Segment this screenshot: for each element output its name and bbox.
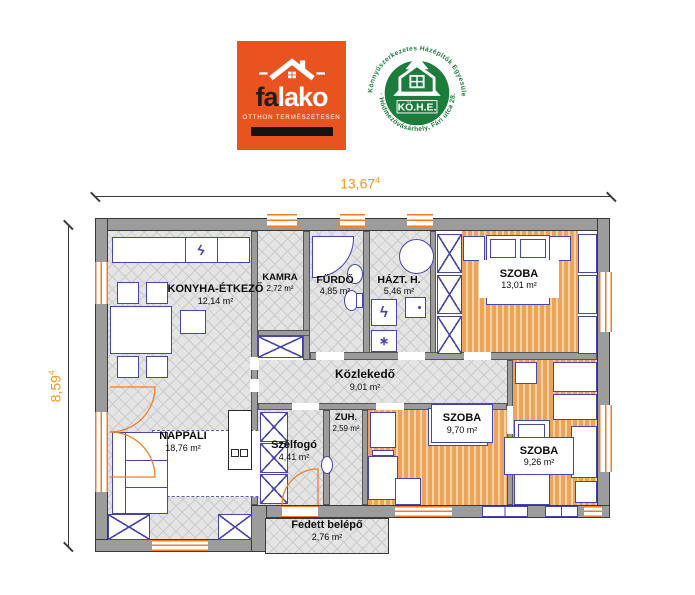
falako-bar	[251, 127, 333, 136]
tv-cabinet-knob	[240, 449, 248, 457]
kitchen-counter: ϟ	[112, 237, 250, 263]
pillow	[469, 412, 484, 441]
single-bed	[514, 420, 550, 505]
cabinet-small	[395, 478, 421, 505]
cabinet-small	[515, 362, 537, 384]
door-gap-vestibule	[292, 403, 319, 410]
counter-divider	[185, 238, 186, 262]
dimension-width-value: 13,67	[340, 176, 375, 192]
cabinet	[578, 316, 597, 354]
window-top-1	[267, 214, 297, 227]
kitchen-chair	[117, 282, 139, 304]
wall-right	[597, 218, 610, 518]
lightning-icon: ϟ	[187, 238, 215, 263]
kohe-emblem-icon: Könnyűszerkezetes Házépítők Egyesülete ·…	[360, 36, 474, 150]
pillow	[520, 239, 546, 258]
cabinet-small	[575, 481, 597, 503]
sofa	[112, 432, 168, 514]
tv-cabinet	[228, 410, 252, 470]
window-right-bedroom3	[599, 405, 612, 472]
cabinet	[553, 362, 597, 392]
vestibule-closet-xbox	[260, 412, 288, 442]
entry-door-threshold	[282, 506, 318, 517]
nightstand	[549, 236, 571, 261]
dimension-height-value: 8,59	[47, 375, 63, 402]
window-left-1	[95, 262, 108, 304]
sofa-back-line	[125, 433, 126, 513]
lightning-icon: ϟ	[380, 304, 388, 321]
cabinet-xbox	[218, 514, 252, 540]
dimension-line-top	[95, 196, 612, 197]
kohe-center-text: KÖ.H.E.	[398, 101, 437, 114]
dining-table	[110, 306, 172, 354]
vestibule-closet-xbox	[260, 474, 288, 504]
cabinet	[553, 394, 597, 420]
sofa-cushion-line	[125, 487, 167, 488]
door-gap-corridor-1	[250, 357, 259, 370]
window-top-2	[340, 214, 365, 227]
floor-pantry	[258, 231, 303, 336]
window-bottom-left	[152, 540, 208, 551]
vent-box: ∗	[371, 330, 397, 352]
dimension-height-sup: 4	[47, 370, 57, 375]
window-left-3	[95, 452, 108, 492]
boiler	[399, 239, 434, 274]
washbasin	[347, 264, 363, 284]
dimension-width-label: 13,674	[295, 175, 425, 192]
window-bottom-bedroom3a	[482, 506, 528, 517]
door-gap-bedroom3	[507, 406, 513, 434]
desk	[368, 456, 398, 500]
window-right-bedroom1	[599, 272, 612, 332]
utility-box	[405, 297, 426, 318]
falako-brand-light: lako	[277, 82, 327, 112]
single-bed	[428, 408, 488, 446]
falako-brand-dark: fa	[255, 82, 277, 112]
utility-box-dot	[418, 306, 421, 309]
toilet-tank	[356, 293, 363, 308]
door-gap-bathroom	[316, 352, 344, 360]
dimension-height-label: 8,594	[47, 321, 64, 451]
floor-shower	[330, 410, 362, 505]
door-gap-corridor-2	[250, 379, 259, 392]
vent-icon: ∗	[379, 334, 389, 348]
electric-panel: ϟ	[371, 299, 397, 326]
falako-tagline: OTTHON TERMÉSZETESEN	[242, 114, 340, 121]
covered-entry	[265, 518, 389, 554]
window-bottom-corner	[584, 506, 602, 517]
kitchen-side-table	[180, 310, 206, 334]
wardrobe	[370, 412, 396, 448]
chair	[555, 440, 571, 462]
cabinet-xbox	[108, 514, 150, 540]
window-left-2	[95, 412, 108, 452]
corridor-closet-xbox	[258, 336, 303, 358]
door-gap-bedroom2	[376, 403, 404, 410]
kitchen-chair	[146, 356, 168, 378]
wardrobe-xbox	[437, 316, 462, 354]
dimension-line-left	[68, 224, 69, 547]
double-bed	[486, 235, 550, 305]
kitchen-chair	[146, 282, 168, 304]
kitchen-chair	[117, 356, 139, 378]
falako-logo: falako OTTHON TERMÉSZETESEN	[237, 41, 346, 150]
dimension-width-sup: 4	[375, 175, 380, 185]
sofa-cushion-line	[125, 460, 167, 461]
door-gap-utility	[398, 352, 425, 360]
wall-bath-utility	[363, 231, 370, 360]
counter-divider	[217, 238, 218, 262]
window-bottom-bedroom3b	[545, 506, 578, 517]
cabinet	[578, 275, 597, 314]
floor-plan-page: falako OTTHON TERMÉSZETESEN Könnyűszerke…	[0, 0, 695, 595]
window-top-3	[407, 214, 433, 227]
wardrobe-xbox	[437, 275, 462, 314]
pillow	[518, 424, 545, 443]
floor-corridor	[258, 360, 507, 403]
falako-roof-icon	[259, 56, 325, 82]
kohe-logo: Könnyűszerkezetes Házépítők Egyesülete ·…	[360, 36, 474, 150]
wall-pantry-bath	[303, 231, 310, 360]
vestibule-closet-xbox	[260, 443, 288, 473]
door-gap-bedroom1	[464, 352, 491, 360]
falako-wordmark: falako	[255, 84, 327, 111]
pillow	[490, 239, 516, 258]
window-bottom-bedroom2	[395, 506, 452, 517]
wardrobe-xbox	[437, 234, 462, 273]
desk	[571, 426, 597, 478]
nightstand	[463, 236, 485, 261]
shower-door-handle	[321, 456, 333, 474]
cabinet	[578, 234, 597, 273]
tv-cabinet-knob	[231, 449, 239, 457]
